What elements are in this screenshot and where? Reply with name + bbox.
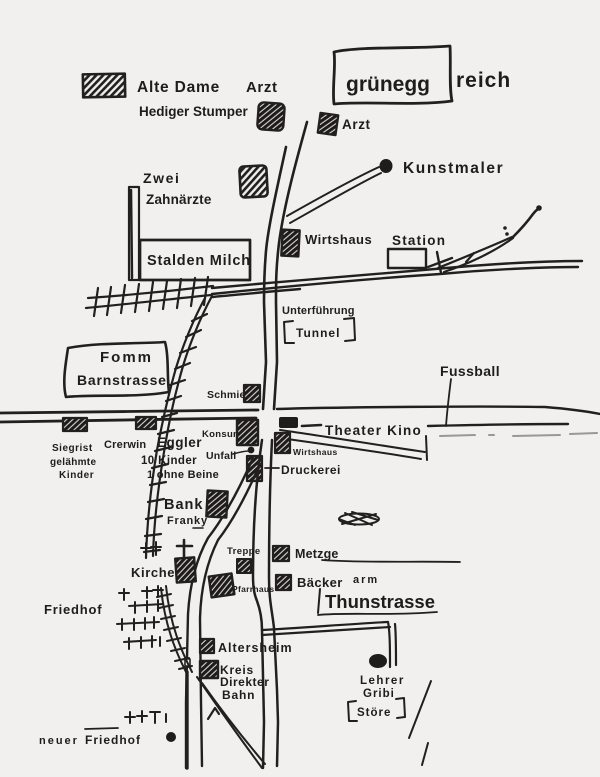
svg-text:Bahn: Bahn — [222, 688, 255, 702]
svg-text:Alte Dame: Alte Dame — [137, 79, 220, 96]
svg-text:Direkter: Direkter — [220, 675, 269, 689]
svg-text:Tunnel: Tunnel — [296, 326, 340, 340]
svg-text:Station: Station — [392, 233, 446, 248]
svg-text:Wirtshaus: Wirtshaus — [305, 232, 372, 247]
svg-text:Crerwin: Crerwin — [104, 439, 146, 451]
svg-text:Wirtshaus: Wirtshaus — [293, 447, 338, 457]
svg-text:Friedhof: Friedhof — [85, 733, 141, 747]
svg-text:Metzge: Metzge — [295, 547, 339, 561]
svg-text:Bank: Bank — [164, 497, 203, 513]
svg-text:Theater Kino: Theater Kino — [325, 423, 422, 438]
svg-text:Arzt: Arzt — [246, 79, 278, 96]
svg-text:grünegg: grünegg — [346, 73, 430, 96]
svg-text:Pfarrhaus: Pfarrhaus — [232, 584, 274, 594]
svg-text:gelähmte: gelähmte — [50, 457, 96, 468]
svg-text:Barnstrasse: Barnstrasse — [77, 372, 167, 388]
svg-text:arm: arm — [353, 574, 379, 586]
svg-text:Störe: Störe — [357, 707, 391, 719]
svg-text:Eggler: Eggler — [157, 435, 202, 450]
svg-text:1 ohne Beine: 1 ohne Beine — [147, 469, 219, 481]
svg-text:Zahnärzte: Zahnärzte — [146, 192, 212, 207]
svg-text:Kirche: Kirche — [131, 565, 175, 580]
svg-text:Druckerei: Druckerei — [281, 463, 341, 477]
svg-text:Fussball: Fussball — [440, 363, 500, 379]
svg-text:Fomm: Fomm — [100, 349, 153, 366]
svg-text:Friedhof: Friedhof — [44, 602, 102, 617]
svg-text:Unterführung: Unterführung — [282, 305, 355, 317]
svg-text:10 Kinder: 10 Kinder — [141, 455, 197, 467]
svg-text:neuer: neuer — [39, 735, 79, 747]
svg-text:Siegrist: Siegrist — [52, 443, 93, 454]
svg-text:Unfall: Unfall — [206, 450, 236, 462]
svg-text:Hediger Stumper: Hediger Stumper — [139, 104, 249, 119]
svg-text:Stalden Milch: Stalden Milch — [147, 253, 251, 269]
svg-text:reich: reich — [456, 69, 511, 92]
svg-text:Treppe: Treppe — [227, 546, 261, 557]
svg-text:Thunstrasse: Thunstrasse — [325, 591, 435, 612]
svg-text:Lehrer: Lehrer — [360, 675, 405, 687]
svg-text:Franky: Franky — [167, 515, 208, 527]
svg-text:Bäcker: Bäcker — [297, 575, 343, 590]
svg-text:Kunstmaler: Kunstmaler — [403, 160, 504, 177]
svg-text:Arzt: Arzt — [342, 117, 371, 132]
svg-text:Zwei: Zwei — [143, 170, 181, 186]
svg-text:Altersheim: Altersheim — [218, 641, 293, 655]
svg-text:Gribi: Gribi — [363, 688, 395, 700]
svg-text:Kinder: Kinder — [59, 470, 94, 481]
